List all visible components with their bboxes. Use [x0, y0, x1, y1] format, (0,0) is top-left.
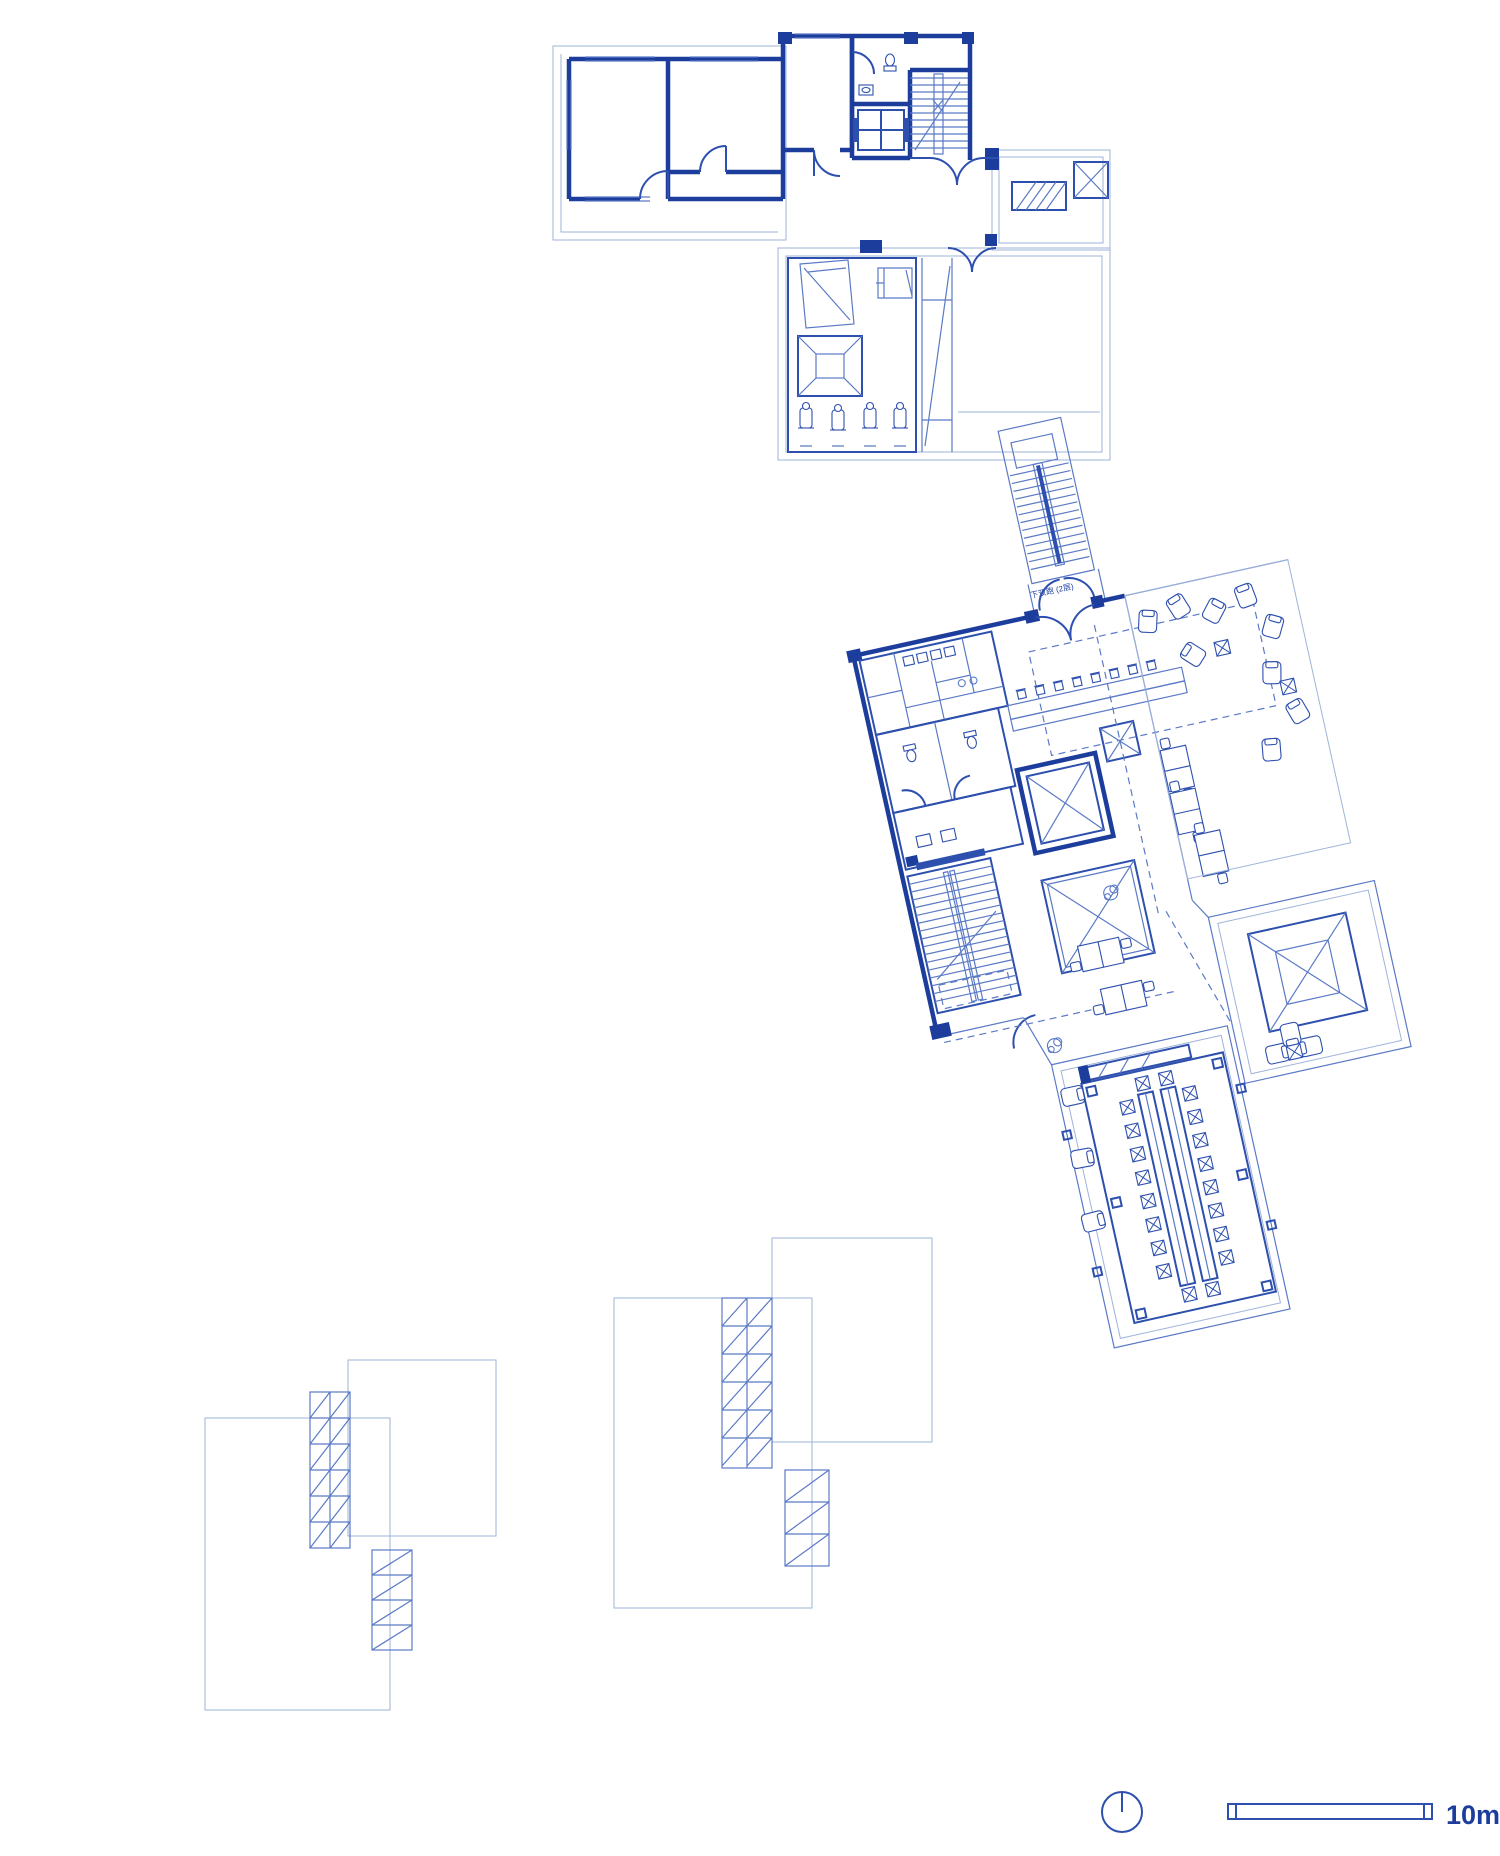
side-table [1214, 640, 1231, 657]
sink-bowl [958, 679, 966, 687]
toilet-door-arcs [902, 776, 975, 811]
toilet-wc [884, 54, 896, 71]
elevator-rail-left [853, 118, 858, 142]
conference-chair [1120, 1100, 1136, 1116]
gym-equipment [830, 405, 846, 431]
roof-slab-upper [772, 1238, 932, 1442]
column-block [985, 234, 997, 246]
service-rooms [860, 632, 1008, 735]
conference-chair [1130, 1146, 1146, 1162]
gym-equipment [862, 403, 878, 429]
service-partitions [860, 632, 1008, 735]
conference-chair [1158, 1071, 1174, 1087]
top-right-terrace [992, 150, 1110, 250]
conference-chair [1146, 1217, 1162, 1233]
lounge-chair [1201, 597, 1227, 625]
conference-chair [1187, 1109, 1203, 1125]
column [1086, 1086, 1097, 1097]
window-lines [567, 57, 758, 201]
locker [903, 655, 915, 666]
conference-chair [1151, 1240, 1167, 1256]
conference-chair [1208, 1203, 1224, 1219]
double-door-terrace [930, 158, 984, 185]
toilet-door-arc [852, 52, 874, 74]
conference-chair [1135, 1076, 1151, 1092]
scale-bar: 10m [1102, 1792, 1500, 1832]
conference-chair [1203, 1179, 1219, 1195]
lounge-chair [1263, 662, 1281, 684]
floor-plan-drawing: 下双跑 (2层) [0, 0, 1500, 1856]
bar-stool [1146, 660, 1158, 671]
conference-chair [1182, 1086, 1198, 1102]
room2-door-arc [700, 146, 726, 172]
ramp-strip [922, 258, 952, 452]
conference-chair [1182, 1287, 1198, 1303]
toilet-wc [903, 744, 918, 763]
scale-bar-ticks [1236, 1804, 1424, 1819]
bar-stool [1090, 672, 1102, 683]
column-block [929, 1022, 952, 1040]
wing-connections [1007, 898, 1232, 1069]
lounge-chair [1284, 697, 1311, 725]
column-block [860, 240, 882, 253]
middle-room-walls [783, 36, 852, 150]
lounge-chair [1070, 1147, 1095, 1169]
middle-plan: 下双跑 (2层) [807, 373, 1461, 1372]
bar-stool [1108, 668, 1120, 679]
column-block [1090, 595, 1104, 609]
toilet-sink [859, 85, 873, 95]
column [1111, 1197, 1122, 1208]
conference-chair [1135, 1170, 1151, 1186]
roof-slab [205, 1418, 390, 1710]
roof-plan-right [614, 1238, 932, 1608]
bar-stool [1053, 680, 1065, 691]
middle-room-door-arc [814, 150, 840, 176]
gym-machine [876, 268, 912, 298]
conference-chair [1198, 1156, 1214, 1172]
lounge-chair [1261, 613, 1284, 639]
scale-bar-rect [1228, 1804, 1432, 1819]
elevator-cab-cross [858, 110, 904, 150]
blueprint-sheet: 下双跑 (2层) [0, 0, 1500, 1856]
room-block-walls [569, 59, 783, 199]
elevator-rail-right [904, 118, 909, 142]
double-door-wing [948, 248, 996, 272]
stair-direction-label: 下双跑 (2层) [1030, 582, 1075, 600]
skylight-grid-lines [722, 1298, 772, 1468]
lounge-chair [1179, 641, 1207, 668]
roof-slab [614, 1298, 812, 1608]
column [1262, 1281, 1273, 1292]
column-block [904, 32, 918, 44]
locker [916, 652, 928, 663]
lounge-chair [1262, 738, 1282, 761]
conference-chair [1193, 1133, 1209, 1149]
gym-bench [800, 260, 854, 328]
conference-chair [1125, 1123, 1141, 1139]
toilet-rooms [876, 708, 1015, 813]
hatched-strip-lines [785, 1470, 829, 1566]
conference-chair [1219, 1250, 1235, 1266]
scale-label: 10m [1446, 1800, 1500, 1830]
side-table [1280, 678, 1297, 695]
column-block [1078, 1065, 1091, 1084]
bar-stool [1016, 688, 1028, 699]
roof-plan-left [205, 1360, 496, 1710]
conference-chair [1213, 1226, 1229, 1242]
bar-stool [1127, 664, 1139, 675]
room1-door-arc [640, 171, 668, 199]
lounge-chair [1138, 610, 1157, 633]
gym-pyramid-diagonals [798, 336, 862, 396]
toilet-partition [935, 722, 952, 800]
gym-pyramid-inner [816, 354, 844, 378]
wash-sink [916, 834, 932, 848]
gym-equipment [798, 403, 814, 429]
toilet-wc [964, 730, 979, 749]
wash-sink [940, 828, 956, 842]
hatch-lines [1016, 182, 1066, 210]
entry-double-doors [1035, 605, 1100, 647]
top-plan [553, 32, 1110, 460]
roof-slab-upper [348, 1360, 496, 1536]
column-block [778, 32, 792, 44]
bar-stool [1071, 676, 1083, 687]
locker [944, 646, 956, 657]
column [1237, 1169, 1248, 1180]
gym-equipment [892, 403, 908, 429]
column-block [962, 32, 974, 44]
plant [1046, 1037, 1064, 1054]
conference-chair [1156, 1264, 1172, 1280]
conference-chair [1205, 1281, 1221, 1297]
lounge-chair [1165, 592, 1192, 620]
stair-landing [1011, 434, 1058, 468]
bar-stool [1034, 684, 1046, 695]
stair-break-line [926, 911, 1008, 979]
lounge-chair [1060, 1085, 1085, 1107]
hatched-strip-lines [372, 1550, 412, 1650]
column [1136, 1308, 1147, 1319]
conference-chair [1141, 1193, 1157, 1209]
top-right-terrace-inner [999, 157, 1103, 243]
lounge-terrace [1125, 560, 1351, 879]
column [1212, 1058, 1223, 1069]
plant [1102, 884, 1120, 901]
locker [930, 649, 942, 660]
long-table-midline [1145, 1093, 1187, 1284]
side-table [1286, 1044, 1303, 1061]
skylight-grid-lines [310, 1392, 350, 1548]
